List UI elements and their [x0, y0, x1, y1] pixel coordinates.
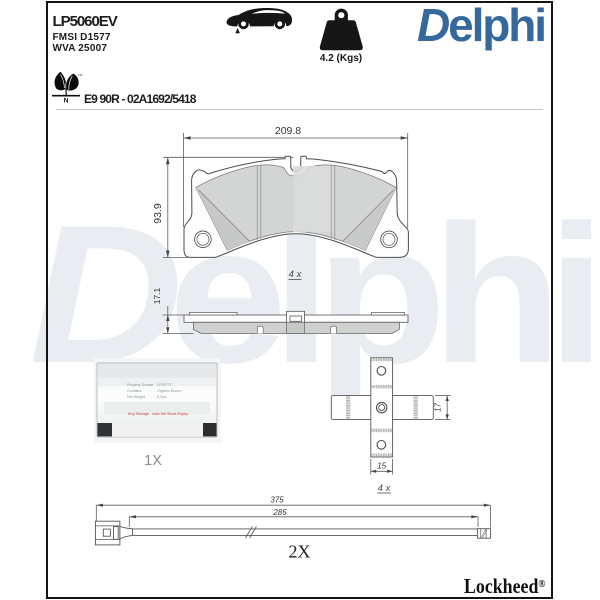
- svg-text:Any Storage - note the Stock E: Any Storage - note the Stock Expiry: [128, 412, 188, 416]
- svg-text:4.2 (Kgs): 4.2 (Kgs): [320, 53, 362, 64]
- svg-text:N: N: [64, 98, 69, 105]
- svg-text:15: 15: [377, 462, 386, 471]
- svg-text:17: 17: [434, 403, 443, 412]
- svg-text:93.9: 93.9: [152, 203, 164, 224]
- svg-text:TM: TM: [78, 73, 83, 77]
- svg-text:4 x: 4 x: [378, 483, 392, 494]
- svg-text:LP1577T: LP1577T: [157, 383, 172, 387]
- svg-text:285: 285: [272, 508, 287, 517]
- svg-text:4 x: 4 x: [289, 269, 303, 280]
- svg-text:Net Weight: Net Weight: [127, 395, 145, 399]
- svg-text:375: 375: [270, 496, 284, 505]
- svg-text:2X: 2X: [289, 542, 311, 562]
- svg-text:6.2mL: 6.2mL: [157, 395, 167, 399]
- svg-text:Contains: Contains: [127, 389, 141, 393]
- svg-text:Organic Brown: Organic Brown: [157, 389, 181, 393]
- svg-text:17.1: 17.1: [152, 287, 162, 304]
- svg-text:209.8: 209.8: [275, 125, 301, 137]
- svg-text:1X: 1X: [144, 453, 162, 469]
- svg-text:Property Grease: Property Grease: [127, 383, 153, 387]
